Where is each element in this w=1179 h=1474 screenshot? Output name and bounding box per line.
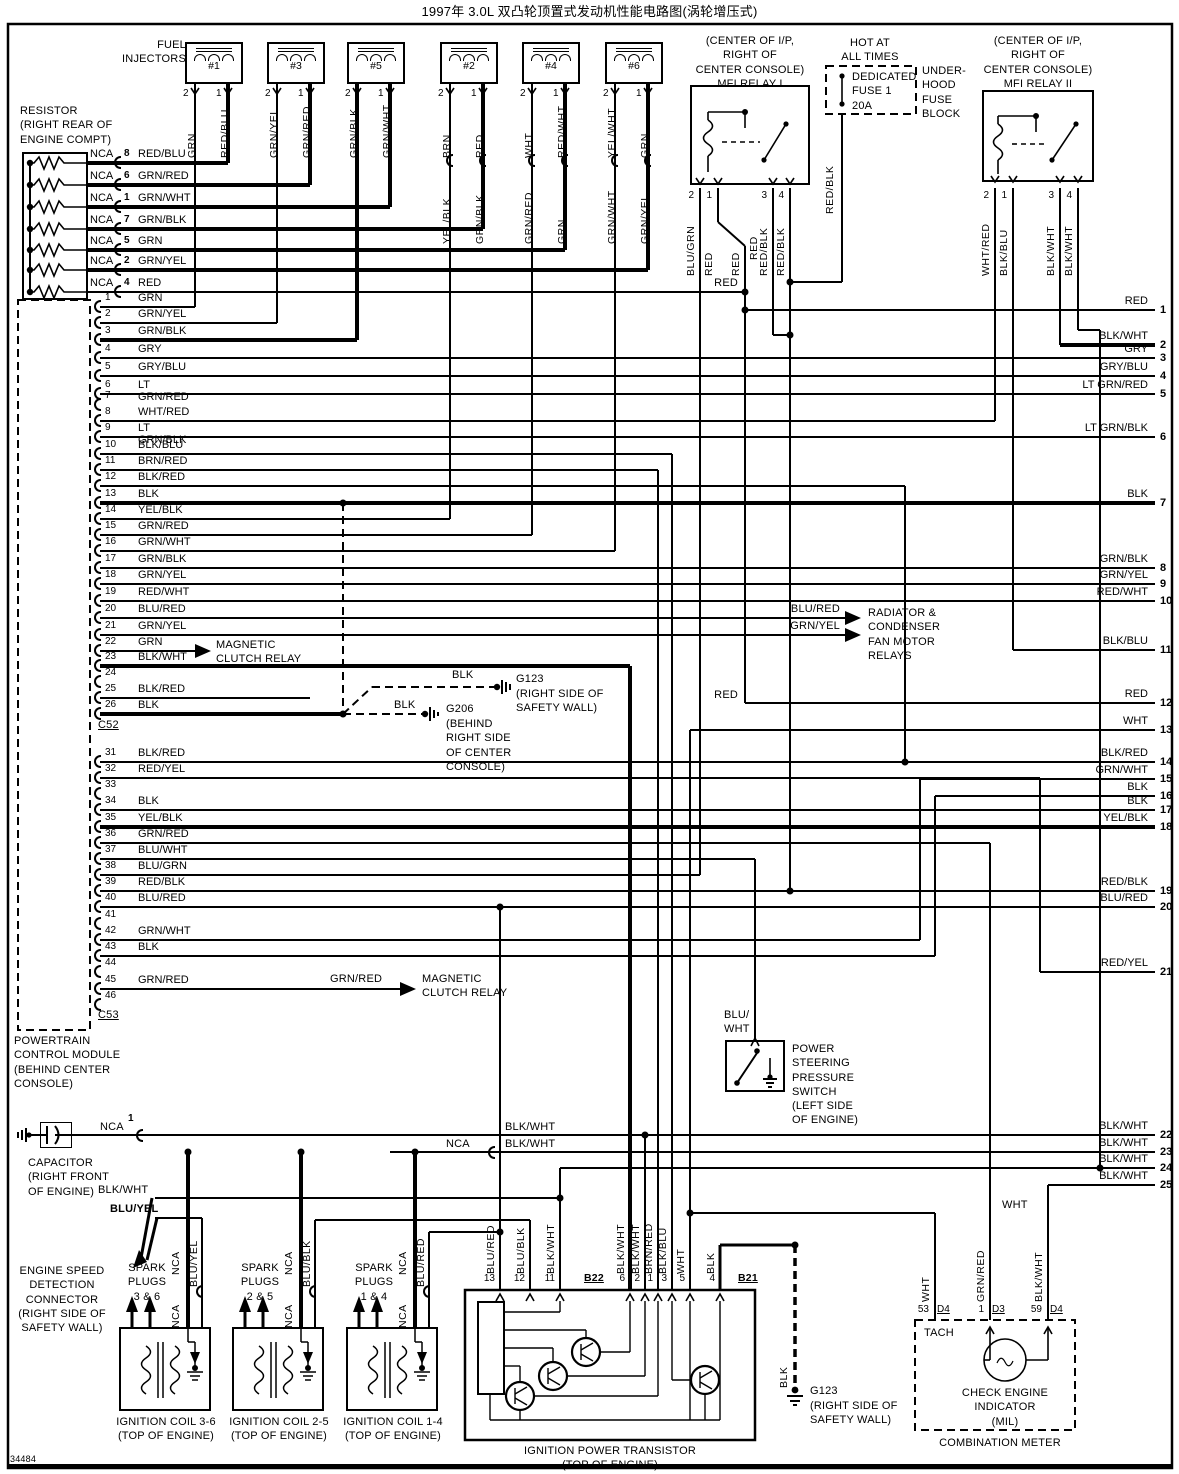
wiring-diagram-page: 1997年 3.0L 双凸轮顶置式发动机性能电路图(涡轮增压式) 34484 F… [0,0,1179,1474]
pcm-connector-arc [94,820,101,833]
pcm-wire-label: RED/WHT [138,586,189,598]
ignition-coil-label: IGNITION COIL 1-4 (TOP OF ENGINE) [335,1415,451,1444]
relay-terminal-pin: 4 [1058,190,1072,201]
g206-name: G206 [446,702,474,716]
pcm-connector-arc [94,479,101,492]
pcm-wire-label: LT GRN/RED [138,379,189,403]
relay-terminal-pin: 2 [680,190,694,201]
ignition-coil-label: IGNITION COIL 3-6 (TOP OF ENGINE) [108,1415,224,1444]
pcm-pin-number: 11 [105,455,115,466]
ignition-coil-unit: SPARK PLUGS 2 & 5 NCA NCA BLU/BLK IGNITI… [233,1255,343,1455]
relay-terminal-wire-label: BLK/WHT [1045,202,1057,276]
pcm-connector-arc [94,316,101,329]
relay-terminal-pin: 4 [770,190,784,201]
injector-name: #1 [187,60,241,72]
resistor-pin-number: 2 [124,255,130,266]
red-net-label-1: RED [698,276,738,290]
edge-wire-label: BLK/WHT [1099,1153,1148,1165]
resistor-label: RESISTOR (RIGHT REAR OF ENGINE COMPT) [20,104,112,147]
resistor-wire-label: RED/BLU [138,148,186,160]
resistor-pin-number: 4 [124,277,130,288]
mfi-relay-2-box [982,90,1094,182]
fan-wire-bottom-label: GRN/YEL [762,619,840,633]
injector-box: #5 [347,42,405,84]
edge-wire-number: 2 [1160,339,1166,351]
capacitor-pin: 1 [128,1112,134,1125]
pcm-pin-number: 16 [105,536,116,547]
pcm-wire-label: WHT/RED [138,406,189,418]
pcm-pin-number: 1 [105,292,111,303]
edge-wire-number: 3 [1160,352,1166,364]
fuel-injector-unit: #1 2 1 GRN RED/BLU [185,42,255,272]
transistor-terminal-wire-label: BLK [705,1222,717,1274]
pcm-pin-number: 43 [105,941,116,952]
pcm-wire-label: RED/YEL [138,763,185,775]
wht-net-label: WHT [1002,1198,1028,1212]
transistor-terminal-wire-label: WHT [675,1222,687,1274]
capacitor-connector-arc [136,1129,143,1142]
g206-location: (BEHIND RIGHT SIDE OF CENTER CONSOLE) [446,717,511,774]
edge-wire-label: LT GRN/BLK [1085,422,1148,434]
pcm-pin-number: 18 [105,569,116,580]
edge-wire-number: 16 [1160,790,1172,802]
mfi-relay-1-location: (CENTER OF I/P, RIGHT OF CENTER CONSOLE)… [660,34,840,91]
injector-box: #1 [185,42,243,84]
pcm-wire-label: BLK/RED [138,471,185,483]
spark-plugs-label: SPARK PLUGS 2 & 5 [231,1261,289,1304]
fan-wire-top-label: BLU/RED [762,602,840,616]
relay-terminal-wire-label: BLK/BLU [998,202,1010,276]
transistor-terminal-wire-label: BLU/BLK [515,1222,527,1274]
blkwht-row23-label: BLK/WHT [505,1137,555,1151]
pcm-connector-arc [94,787,101,800]
pcm-wire-label: BLK/RED [138,747,185,759]
injector-wire-1-label: RED [474,98,486,158]
pcm-wire-label: BLU/RED [138,603,186,615]
diagram-title: 1997年 3.0L 双凸轮顶置式发动机性能电路图(涡轮增压式) [0,4,1179,21]
edge-wire-label: YEL/BLK [1103,812,1148,824]
transistor-terminal-pin: 1 [639,1273,653,1284]
pcm-connector-arc [94,836,101,849]
pcm-pin-number: 35 [105,812,116,823]
pcm-pin-number: 45 [105,974,116,985]
resistor-box [22,152,88,300]
pcm-connector-arc [94,628,101,641]
pcm-pin-number: 37 [105,844,116,855]
resistor-nca-label: NCA [90,277,113,289]
resistor-pin-number: 6 [124,170,130,181]
pcm-pin-number: 34 [105,795,116,806]
injector-wire-2-label: BRN [441,98,453,158]
injector-lower-wire-1-label: GRN/BLK [474,170,486,244]
meter-terminal-pin: 53 [913,1304,929,1315]
pcm-pin-number: 38 [105,860,116,871]
transistor-connector-b21: B21 [738,1272,758,1286]
resistor-nca-label: NCA [90,255,113,267]
relay-terminal-pin: 3 [753,190,767,201]
coil-feed-wire-label: BLU/BLK [301,1241,313,1287]
magnetic-clutch-wire-label: GRN/RED [330,972,382,986]
combination-meter-label: COMBINATION METER [925,1436,1075,1450]
coil-connector-arc [196,1285,203,1298]
injector-name: #6 [607,60,661,72]
injector-name: #5 [349,60,403,72]
pcm-connector-arc [94,463,101,476]
edge-wire-label: LT GRN/RED [1082,379,1148,391]
pcm-connector-arc [94,611,101,624]
pcm-pin-number: 40 [105,892,116,903]
spark-plugs-label: SPARK PLUGS 1 & 4 [345,1261,403,1304]
pcm-pin-number: 14 [105,504,116,515]
relay-terminal-pin: 2 [975,190,989,201]
injector-core-icon [358,48,394,52]
injector-name: #3 [269,60,323,72]
meter-terminal-connector: D4 [937,1304,950,1315]
transistor-terminal-wire-label: BLK/BLU [657,1222,669,1274]
edge-wire-label: BLK/WHT [1099,330,1148,342]
coil-nca-label-lower: NCA [397,1300,409,1328]
pcm-pin-number: 33 [105,779,116,790]
injector-core-icon [451,48,487,52]
transistor-terminal-pin: 4 [701,1273,715,1284]
coil-nca-label-lower: NCA [170,1300,182,1328]
resistor-wire-label: RED [138,277,161,289]
pcm-label: POWERTRAIN CONTROL MODULE (BEHIND CENTER… [14,1034,120,1091]
g123-mid-name: G123 [516,672,544,686]
pcm-connector-arc [94,917,101,930]
injector-name: #2 [442,60,496,72]
edge-wire-number: 7 [1160,497,1166,509]
edge-wire-number: 22 [1160,1129,1172,1141]
injector-connector-arc [446,154,453,167]
coil-feed-wire-label: BLU/RED [415,1241,427,1287]
edge-wire-number: 5 [1160,388,1166,400]
pcm-wire-label: GRN [138,636,162,648]
pcm-pin-number: 20 [105,603,116,614]
mfi-relay-2-location: (CENTER OF I/P, RIGHT OF CENTER CONSOLE)… [968,34,1108,91]
pcm-pin-number: 25 [105,683,116,694]
pcm-connector-arc [94,659,101,672]
pcm-connector-arc [94,803,101,816]
pcm-wire-label: BLK/WHT [138,651,187,663]
edge-wire-label: GRN/BLK [1100,553,1148,565]
relay-terminal-wire-label: WHT/RED [980,202,992,276]
pcm-wire-label: GRN/BLK [138,325,186,337]
pcm-connector-arc [94,755,101,768]
edge-wire-label: GRY/BLU [1100,361,1148,373]
injector-lower-wire-2-label: YEL/BLK [441,170,453,244]
injector-box: #2 [440,42,498,84]
pcm-wire-label: BLK/BLU [138,439,183,451]
pcm-wire-label: GRN/RED [138,828,189,840]
pcm-connector-arc [94,982,101,995]
edge-wire-number: 6 [1160,431,1166,443]
power-steering-switch-box [725,1040,785,1092]
edge-wire-label: GRY [1124,343,1148,355]
pcm-wire-label: BLK [138,488,159,500]
pcm-pin-number: 17 [105,553,116,564]
coil-nca-label-lower: NCA [283,1300,295,1328]
magnetic-clutch-relay-label-2: MAGNETIC CLUTCH RELAY [422,972,507,1001]
pcm-connector-arc [94,707,101,720]
ignition-coil-unit: SPARK PLUGS 3 & 6 NCA NCA BLU/YEL IGNITI… [120,1255,230,1455]
pcm-wire-label: RED/BLK [138,876,185,888]
pcm-wire-label: BLK [138,699,159,711]
blkwht-row22-label: BLK/WHT [505,1120,555,1134]
pcm-connector-arc [94,333,101,346]
pcm-pin-number: 24 [105,667,116,678]
pcm-pin-number: 19 [105,586,116,597]
pcm-wire-label: GRN/WHT [138,536,191,548]
resistor-wire-label: GRN/YEL [138,255,186,267]
pcm-connector-arc [94,398,101,411]
resistor-nca-label: NCA [90,148,113,160]
pcm-pin-number: 8 [105,406,111,417]
injector-wire-2-label: WHT [523,98,535,158]
transistor-terminal-pin: 2 [626,1273,640,1284]
relay-terminal-pin: 3 [1040,190,1054,201]
injector-connector-arc [528,154,535,167]
pcm-pin-number: 39 [105,876,116,887]
resistor-pin-number: 5 [124,235,130,246]
capacitor-box [40,1122,72,1148]
g123-mid-wire-label: BLK [452,668,473,682]
resistor-pin-number: 8 [124,148,130,159]
edge-wire-number: 12 [1160,697,1172,709]
transistor-terminal-pin: 3 [653,1273,667,1284]
injector-core-icon [196,48,232,52]
pcm-connector-c53: C53 [98,1008,119,1022]
meter-terminal-wire-label: BLK/WHT [1033,1234,1045,1302]
edge-wire-number: 4 [1160,370,1166,382]
injector-wire-1-label: GRN/WHT [381,98,393,158]
relay-terminal-pin: 1 [993,190,1007,201]
injector-wire-1-label: RED/WHT [556,98,568,158]
edge-wire-label: RED/YEL [1101,957,1148,969]
pcm-pin-number: 4 [105,343,111,354]
injector-wire-1-label: GRN/RED [301,98,313,158]
pcm-wire-label: GRN/YEL [138,569,186,581]
resistor-wire-label: GRN [138,235,162,247]
pcm-wire-label: BLK [138,941,159,953]
coil-feed-wire-label: BLU/YEL [188,1241,200,1287]
injector-box: #6 [605,42,663,84]
pcm-wire-label: BLU/GRN [138,860,187,872]
edge-wire-number: 9 [1160,578,1166,590]
pcm-connector-arc [94,949,101,962]
pcm-connector-arc [94,577,101,590]
meter-terminal-pin: 59 [1026,1304,1042,1315]
transistor-terminal-wire-label: BLK/WHT [545,1222,557,1274]
pcm-pin-number: 13 [105,488,116,499]
injector-wire-1-label: RED/BLU [219,98,231,158]
pcm-connector-arc [94,496,101,509]
edge-wire-label: BLK/WHT [1099,1137,1148,1149]
edge-wire-number: 19 [1160,885,1172,897]
pcm-wire-label: YEL/BLK [138,504,183,516]
pcm-connector-arc [94,965,101,978]
pcm-connector-arc [94,852,101,865]
edge-wire-label: RED/WHT [1097,586,1148,598]
injector-connector-arc [561,154,568,167]
injector-core-icon [616,48,652,52]
pcm-pin-number: 26 [105,699,116,710]
edge-wire-number: 11 [1160,644,1172,656]
pcm-connector-arc [94,998,101,1011]
pcm-pin-number: 44 [105,957,116,968]
injector-wire-2-label: GRN [186,98,198,158]
relay-terminal-wire-label: RED/BLK [775,202,787,276]
resistor-connector-arc [114,200,121,213]
pcm-wire-label: BLK [138,795,159,807]
pcm-pin-number: 15 [105,520,116,531]
transistor-terminal-wire-label: BRN/RED [643,1222,655,1274]
resistor-nca-label: NCA [90,170,113,182]
resistor-wire-label: GRN/WHT [138,192,191,204]
edge-wire-number: 8 [1160,562,1166,574]
pcm-wire-label: GRN/YEL [138,308,186,320]
injector-connector-arc [644,154,651,167]
pcm-pin-number: 6 [105,379,111,390]
pcm-wire-label: GRN [138,292,162,304]
pcm-connector-arc [94,884,101,897]
injector-connector-arc [611,154,618,167]
pcm-pin-number: 23 [105,651,116,662]
pcm-wire-label: GRY [138,343,162,355]
pcm-connector-arc [94,544,101,557]
meter-terminal-pin: 1 [968,1304,984,1315]
fuel-injector-unit: #4 2 1 WHT RED/WHT GRN/RED GRN [522,42,592,272]
relay-terminal-wire-label: BLU/GRN [685,202,697,276]
pcm-connector-arc [94,644,101,657]
nca-row23-label: NCA [446,1137,470,1151]
coil-connector-arc [423,1285,430,1298]
relay-terminal-wire-label: BLK/WHT [1063,202,1075,276]
pcm-connector-arc [94,430,101,443]
injector-core-icon [278,48,314,52]
injector-lower-wire-2-label: GRN/RED [523,170,535,244]
pcm-pin-number: 46 [105,990,116,1001]
resistor-connector-arc [114,156,121,169]
pcm-pin-number: 41 [105,909,116,920]
meter-terminal-connector: D4 [1050,1304,1063,1315]
pcm-pin-number: 9 [105,422,111,433]
g206-wire-label: BLK [394,698,415,712]
doc-number: 34484 [10,1454,36,1466]
resistor-connector-arc [114,285,121,298]
injector-lower-wire-2-label: GRN/WHT [606,170,618,244]
pcm-wire-label: GRY/BLU [138,361,186,373]
pcm-wire-label: GRN/WHT [138,925,191,937]
resistor-connector-arc [114,243,121,256]
pcm-wire-label: GRN/RED [138,974,189,986]
underhood-fuse-block-label: UNDER- HOOD FUSE BLOCK [922,64,966,121]
resistor-connector-arc [114,263,121,276]
pcm-connector-arc [94,414,101,427]
pcm-wire-label: GRN/RED [138,520,189,532]
capacitor-label: CAPACITOR (RIGHT FRONT OF ENGINE) [28,1156,109,1199]
pcm-connector-arc [94,300,101,313]
edge-wire-number: 24 [1160,1162,1172,1174]
mfi-relay-1-box [690,85,810,185]
engine-speed-wire-top-label: BLK/WHT [98,1183,148,1197]
resistor-pin-number: 7 [124,214,130,225]
power-steering-wire-label: BLU/ WHT [724,1008,750,1037]
magnetic-clutch-relay-label-1: MAGNETIC CLUTCH RELAY [216,638,301,667]
pcm-pin-number: 12 [105,471,116,482]
pcm-connector-arc [94,512,101,525]
pcm-pin-number: 10 [105,439,116,450]
pcm-pin-number: 22 [105,636,116,647]
resistor-wire-label: GRN/BLK [138,214,186,226]
pcm-connector-arc [94,933,101,946]
pcm-pin-number: 42 [105,925,116,936]
edge-wire-number: 21 [1160,966,1172,978]
dedicated-fuse-label: DEDICATED FUSE 1 20A [852,70,917,113]
ignition-coil-unit: SPARK PLUGS 1 & 4 NCA NCA BLU/RED IGNITI… [347,1255,457,1455]
mil-label: CHECK ENGINE INDICATOR (MIL) [950,1386,1060,1429]
injector-wire-2-label: YEL/WHT [606,98,618,158]
edge-wire-label: BLK/RED [1101,747,1148,759]
pcm-connector-arc [94,528,101,541]
edge-wire-number: 23 [1160,1146,1172,1158]
edge-wire-number: 17 [1160,804,1172,816]
relay-terminal-pin: 1 [698,190,712,201]
pcm-wire-label: BLU/RED [138,892,186,904]
pcm-wire-label: YEL/BLK [138,812,183,824]
tach-label: TACH [924,1326,954,1340]
edge-wire-number: 1 [1160,304,1166,316]
pcm-connector-arc [94,900,101,913]
injector-core-icon [533,48,569,52]
relay-terminal-wire-label: RED [703,202,715,276]
edge-wire-label: BLK [1127,795,1148,807]
pcm-pin-number: 21 [105,620,116,631]
pcm-connector-arc [94,561,101,574]
pcm-pin-number: 31 [105,747,116,758]
meter-terminal-wire-label: WHT [920,1234,932,1302]
edge-wire-label: BLK [1127,781,1148,793]
red-net-label-2: RED [698,688,738,702]
power-transistor-label: IGNITION POWER TRANSISTOR (TOP OF ENGINE… [460,1444,760,1473]
power-steering-label: POWER STEERING PRESSURE SWITCH (LEFT SID… [792,1042,858,1128]
resistor-connector-arc [114,222,121,235]
g123-bottom-name: G123 [810,1384,838,1398]
resistor-connector-arc [114,178,121,191]
engine-speed-wire-bottom-label: BLU/YEL [110,1202,158,1216]
pcm-pin-number: 2 [105,308,111,319]
transistor-terminal-wire-label: BLU/RED [485,1222,497,1274]
pcm-pin-number: 36 [105,828,116,839]
edge-wire-number: 13 [1160,724,1172,736]
pcm-connector-arc [94,447,101,460]
fuel-injector-unit: #2 2 1 BRN RED YEL/BLK GRN/BLK [440,42,510,272]
pcm-connector-arc [94,675,101,688]
pcm-connector-arc [94,369,101,382]
edge-wire-label: RED [1125,688,1148,700]
pcm-connector-arc [94,594,101,607]
fuel-injectors-label: FUEL INJECTORS [108,38,186,67]
edge-wire-label: BLK/BLU [1103,635,1148,647]
pcm-wire-label: BLU/WHT [138,844,188,856]
pcm-pin-number: 5 [105,361,111,372]
edge-wire-number: 18 [1160,821,1172,833]
pcm-wire-label: BLK/RED [138,683,185,695]
edge-wire-number: 14 [1160,756,1172,768]
edge-wire-label: GRN/WHT [1095,764,1148,776]
injector-box: #4 [522,42,580,84]
edge-wire-label: BLK/WHT [1099,1120,1148,1132]
